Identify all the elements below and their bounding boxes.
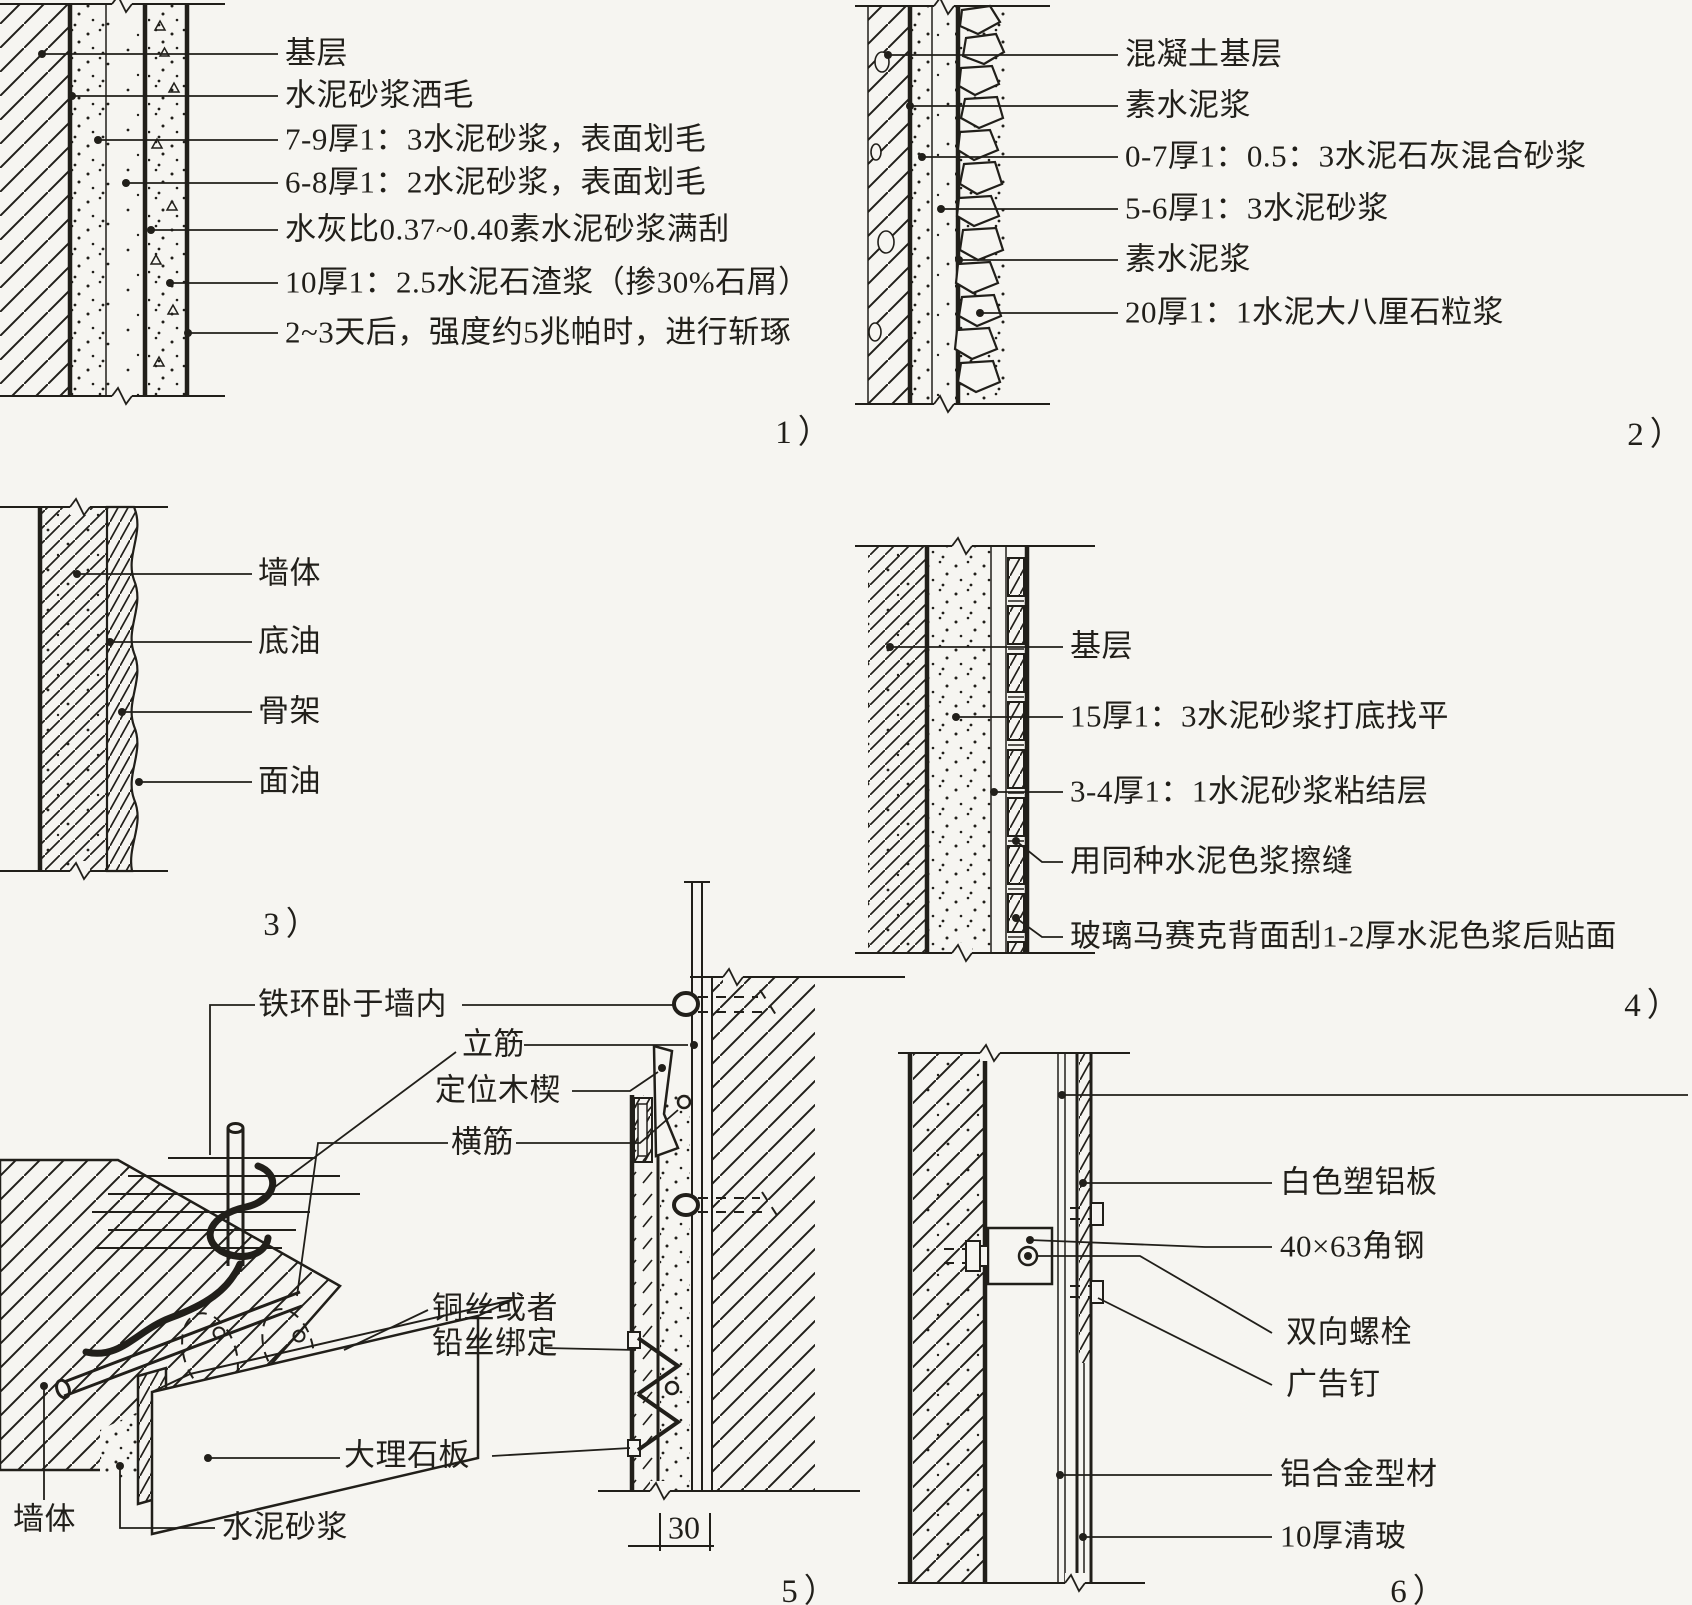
layer-label: 水泥砂浆洒毛 (285, 79, 474, 114)
layer-label: 0-7厚1：0.5：3水泥石灰混合砂浆 (1125, 140, 1587, 175)
layer-label: 骨架 (258, 695, 321, 730)
layer-label: 面油 (258, 765, 321, 800)
layer-label: 6-8厚1：2水泥砂浆，表面划毛 (285, 166, 706, 201)
layer-label: 15厚1：3水泥砂浆打底找平 (1070, 700, 1449, 735)
panel-caption: 6） (1390, 1564, 1452, 1605)
part-label: 双向螺栓 (1286, 1316, 1412, 1351)
layer-label: 7-9厚1：3水泥砂浆，表面划毛 (285, 123, 706, 158)
part-label: 定位木楔 (435, 1074, 561, 1109)
part-label: 铝合金型材 (1280, 1458, 1438, 1493)
layer-label: 3-4厚1：1水泥砂浆粘结层 (1070, 775, 1428, 810)
panel-caption: 5） (781, 1564, 843, 1605)
part-label: 广告钉 (1286, 1368, 1381, 1403)
layer-label: 10厚1：2.5水泥石渣浆（掺30%石屑） (285, 266, 810, 301)
panel-caption: 3） (263, 897, 325, 945)
part-label: 10厚清玻 (1280, 1520, 1407, 1555)
part-label: 大理石板 (344, 1439, 470, 1474)
part-label: 立筋 (462, 1028, 525, 1063)
panel-4-glass-mosaic-wall-section (855, 536, 1095, 961)
layer-label: 墙体 (258, 557, 321, 592)
layer-label: 混凝土基层 (1125, 38, 1283, 73)
layer-label: 20厚1：1水泥大八厘石粒浆 (1125, 296, 1504, 331)
layer-label: 素水泥浆 (1125, 89, 1251, 124)
layer-label: 底油 (258, 625, 321, 660)
part-label: 铁环卧于墙内 (258, 988, 447, 1023)
dimension-value: 30 (668, 1510, 700, 1547)
layer-label: 素水泥浆 (1125, 243, 1251, 278)
part-label: 白色塑铝板 (1280, 1166, 1438, 1201)
layer-label: 水灰比0.37~0.40素水泥砂浆满刮 (285, 213, 730, 248)
panel-3-painted-wall-section (0, 497, 252, 879)
panel-2-granolithic-wall-section (855, 0, 1118, 412)
panel-caption: 2） (1627, 407, 1689, 455)
layer-label: 玻璃马赛克背面刮1-2厚水泥色浆后贴面 (1070, 920, 1617, 955)
layer-label: 2~3天后，强度约5兆帕时，进行斩琢 (285, 316, 791, 351)
panel-caption: 1） (775, 405, 837, 453)
part-label: 铜丝或者铅丝绑定 (432, 1291, 584, 1360)
layer-label: 用同种水泥色浆擦缝 (1070, 845, 1354, 880)
mosaic-tiles (1008, 558, 1024, 953)
part-label: 墙体 (13, 1503, 76, 1538)
panel-caption: 4） (1624, 978, 1686, 1026)
part-label: 40×63角钢 (1280, 1230, 1425, 1265)
figure-page: .ln{stroke:#211f1a;fill:none;stroke-widt… (0, 0, 1692, 1605)
layer-label: 基层 (285, 37, 348, 72)
part-label: 横筋 (451, 1126, 514, 1161)
layer-label: 5-6厚1：3水泥砂浆 (1125, 192, 1389, 227)
panel-1-terrazzo-wall-section (0, 0, 278, 406)
layer-label: 基层 (1070, 630, 1133, 665)
part-label: 水泥砂浆 (222, 1511, 348, 1546)
technical-drawing: .ln{stroke:#211f1a;fill:none;stroke-widt… (0, 0, 1692, 1605)
panel-5-section-view (598, 882, 905, 1551)
